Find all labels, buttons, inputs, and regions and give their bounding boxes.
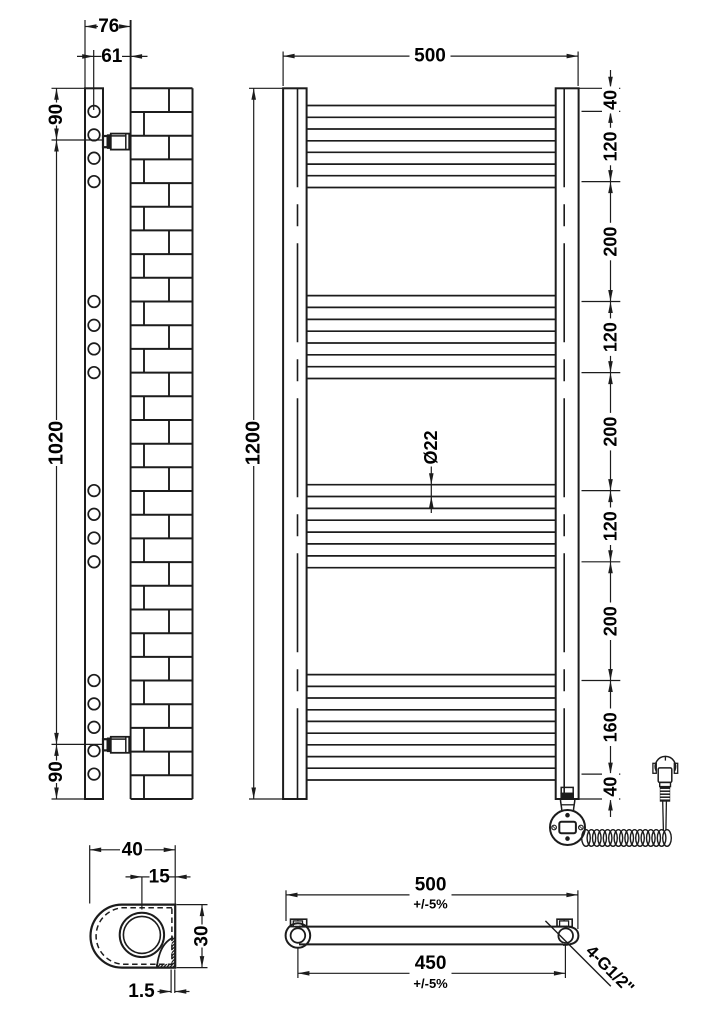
svg-text:40: 40 xyxy=(601,90,621,110)
svg-text:76: 76 xyxy=(98,16,119,37)
svg-text:450: 450 xyxy=(415,953,447,974)
svg-text:Ø22: Ø22 xyxy=(421,430,441,464)
svg-text:1020: 1020 xyxy=(46,421,68,466)
svg-text:200: 200 xyxy=(601,227,621,257)
svg-text:160: 160 xyxy=(601,712,621,742)
svg-text:200: 200 xyxy=(601,606,621,636)
svg-text:120: 120 xyxy=(601,322,621,352)
svg-text:+/-5%: +/-5% xyxy=(413,897,448,912)
svg-text:120: 120 xyxy=(601,131,621,161)
svg-text:200: 200 xyxy=(601,417,621,447)
svg-text:1.5: 1.5 xyxy=(128,981,155,1002)
svg-text:120: 120 xyxy=(601,511,621,541)
svg-text:500: 500 xyxy=(415,875,447,896)
svg-text:40: 40 xyxy=(122,839,143,860)
svg-text:500: 500 xyxy=(414,46,446,67)
svg-text:90: 90 xyxy=(46,104,67,125)
svg-text:90: 90 xyxy=(46,761,67,782)
svg-text:+/-5%: +/-5% xyxy=(413,976,448,991)
svg-text:30: 30 xyxy=(192,925,213,946)
svg-text:61: 61 xyxy=(101,46,123,67)
svg-text:1200: 1200 xyxy=(243,421,265,466)
svg-text:40: 40 xyxy=(601,777,621,797)
svg-text:15: 15 xyxy=(149,866,171,887)
